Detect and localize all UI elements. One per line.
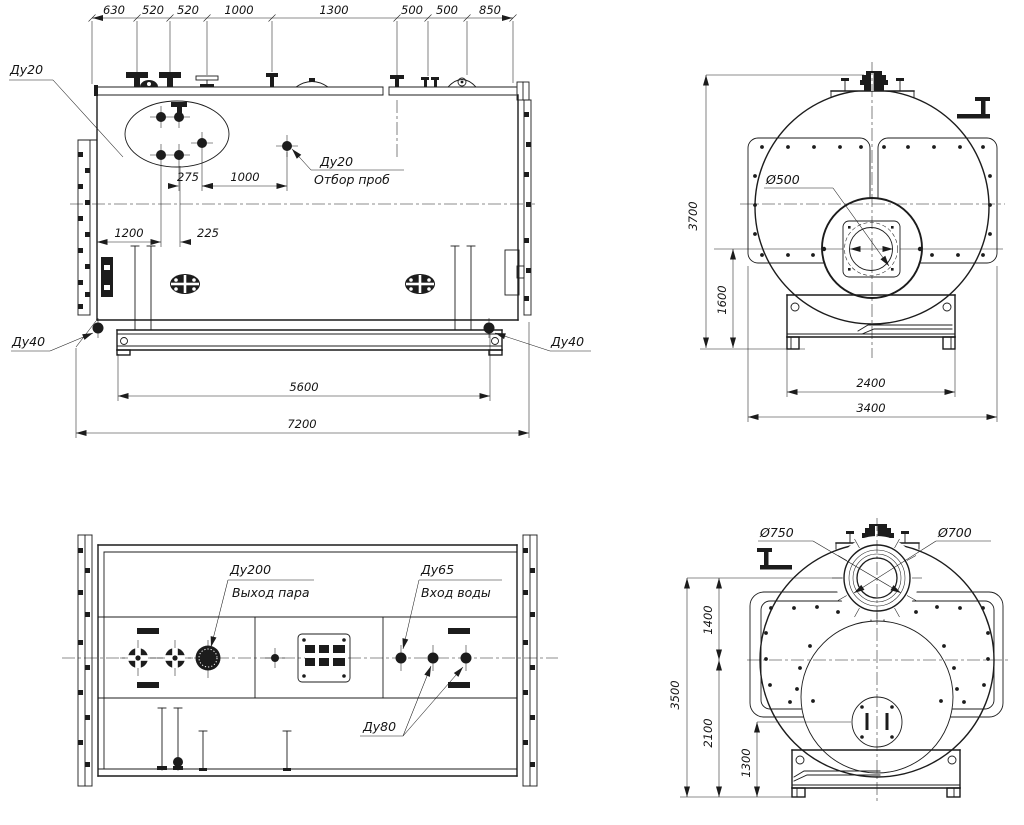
dim-o700: Ø700 bbox=[937, 525, 972, 540]
dim-2100: 2100 bbox=[701, 718, 715, 747]
du200-label: Ду200 bbox=[229, 562, 271, 577]
side-view: 630 520 520 1000 1300 500 500 850 bbox=[9, 3, 591, 438]
side-nozzle-group-ellipse bbox=[125, 101, 229, 167]
plan-left-flange-strip bbox=[78, 535, 92, 786]
du40-callout-left: Ду40 bbox=[11, 318, 104, 351]
rear-side-fitting bbox=[757, 548, 792, 570]
steam-out-label: Выход пара bbox=[232, 585, 310, 600]
dim-1600: 1600 bbox=[715, 285, 729, 314]
sample-nozzle-callout: Ду20 Отбор проб bbox=[276, 135, 404, 191]
dim-7200: 7200 bbox=[287, 417, 316, 431]
dim-3700: 3700 bbox=[686, 201, 700, 230]
du80-label: Ду80 bbox=[362, 719, 396, 734]
dim-630: 630 bbox=[103, 3, 125, 17]
water-in-label: Вход воды bbox=[421, 585, 491, 600]
rear-dims: 3500 1400 2100 1300 bbox=[668, 578, 800, 797]
plan-view: Ду200 Выход пара Ду65 bbox=[62, 535, 558, 786]
du40-left-label: Ду40 bbox=[11, 334, 45, 349]
du20-label: Ду20 bbox=[9, 62, 43, 77]
plan-water-inlet-group: Ду65 Вход воды Ду80 bbox=[360, 562, 502, 736]
dim-2400: 2400 bbox=[856, 376, 885, 390]
front-dim-1600: 1600 bbox=[715, 249, 733, 348]
side-left-flange-strip bbox=[78, 140, 113, 315]
dim-1300: 1300 bbox=[319, 3, 348, 17]
dim-o500: Ø500 bbox=[765, 172, 800, 187]
sample-du-label: Ду20 bbox=[319, 154, 353, 169]
du20-callout: Ду20 bbox=[9, 62, 123, 157]
plan-middle-plate bbox=[265, 634, 350, 682]
side-dims-275-1000: 275 1000 bbox=[168, 154, 287, 191]
dim-500a: 500 bbox=[401, 3, 423, 17]
dim-1000-top: 1000 bbox=[224, 3, 253, 17]
front-view: 3700 1600 2400 3400 Ø500 bbox=[686, 62, 1005, 422]
plan-bottom-pipes bbox=[157, 708, 291, 771]
drawing-sheet: 630 520 520 1000 1300 500 500 850 bbox=[0, 0, 1024, 825]
dim-1200: 1200 bbox=[114, 226, 143, 240]
front-side-fitting bbox=[957, 97, 990, 119]
side-shell-body bbox=[70, 82, 535, 320]
side-top-fittings bbox=[126, 72, 476, 87]
dim-3500: 3500 bbox=[668, 680, 682, 709]
dim-500b: 500 bbox=[436, 3, 458, 17]
side-skid bbox=[76, 321, 502, 355]
dim-850: 850 bbox=[479, 3, 501, 17]
rear-view: Ø750 Ø700 3500 bbox=[668, 518, 1010, 802]
side-dims-1200-225: 1200 225 bbox=[97, 166, 219, 247]
side-dims-5600-7200: 5600 7200 bbox=[76, 322, 529, 438]
front-skid bbox=[787, 295, 955, 349]
side-top-dimension-chain: 630 520 520 1000 1300 500 500 850 bbox=[89, 3, 517, 158]
dim-275: 275 bbox=[177, 170, 199, 184]
dim-5600: 5600 bbox=[289, 380, 318, 394]
sample-name-label: Отбор проб bbox=[314, 172, 390, 187]
dim-1000: 1000 bbox=[230, 170, 259, 184]
dim-1300: 1300 bbox=[739, 748, 753, 777]
dim-225: 225 bbox=[197, 226, 219, 240]
dim-520b: 520 bbox=[177, 3, 199, 17]
du65-label: Ду65 bbox=[420, 562, 454, 577]
dim-520a: 520 bbox=[142, 3, 164, 17]
dim-1400: 1400 bbox=[701, 605, 715, 634]
du40-right-label: Ду40 bbox=[550, 334, 584, 349]
dim-3400: 3400 bbox=[856, 401, 885, 415]
side-handholes bbox=[170, 274, 435, 294]
plan-right-flange-strip bbox=[523, 535, 537, 786]
dim-o750: Ø750 bbox=[759, 525, 794, 540]
boiler-engineering-drawing: 630 520 520 1000 1300 500 500 850 bbox=[0, 0, 1024, 825]
